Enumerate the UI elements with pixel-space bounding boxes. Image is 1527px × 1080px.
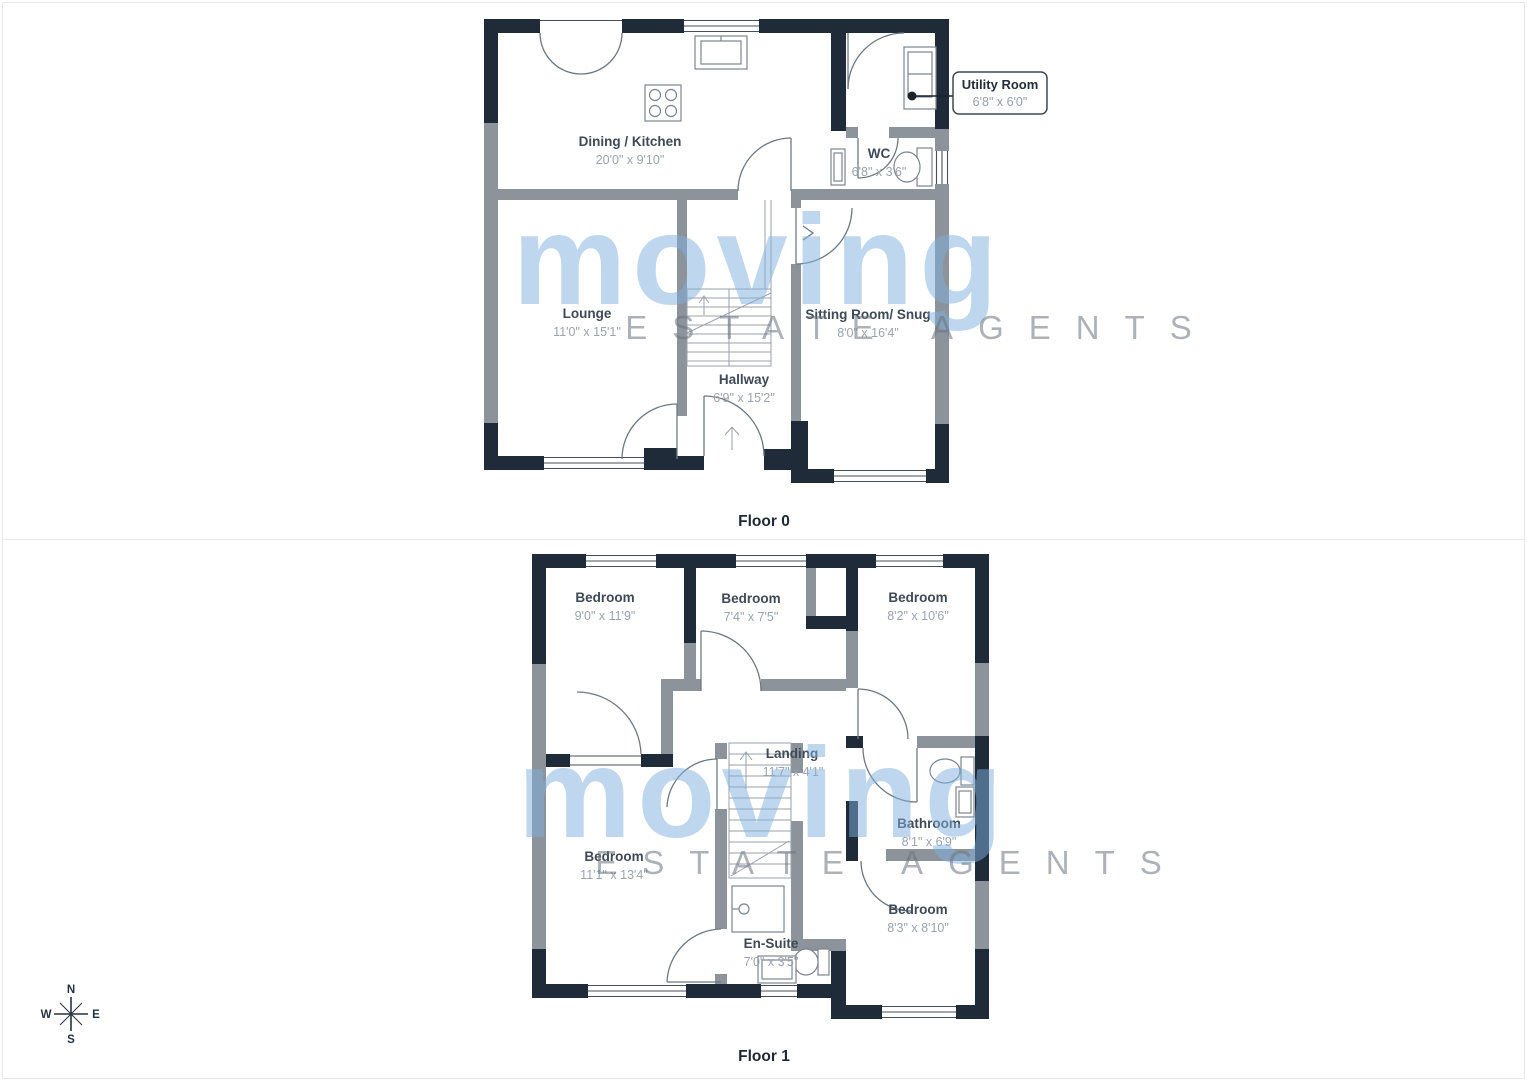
ensuite-toilet-icon bbox=[818, 949, 829, 975]
callout-room-name: Utility Room bbox=[962, 77, 1039, 92]
room-label-hallway: Hallway bbox=[719, 372, 770, 387]
room-label-wc: WC bbox=[868, 146, 891, 161]
room-label-ensuite: En-Suite bbox=[744, 936, 799, 951]
hob-icon bbox=[645, 85, 681, 121]
floor1-watermark: moving ESTATE AGENTS bbox=[517, 722, 1186, 881]
watermark-tagline: ESTATE AGENTS bbox=[625, 309, 1217, 346]
wc-sink-icon bbox=[831, 149, 845, 185]
shower-icon bbox=[732, 886, 784, 932]
room-label-bedroom1: Bedroom bbox=[575, 590, 634, 605]
room-dims-hallway: 6'9" x 15'2" bbox=[713, 391, 775, 405]
compass-south: S bbox=[67, 1034, 75, 1046]
room-label-bedroom5: Bedroom bbox=[888, 902, 947, 917]
floor1-plan: Bedroom 9'0" x 11'9" Bedroom 7'4" x 7'5"… bbox=[3, 540, 1524, 1078]
room-dims-ensuite: 7'0" x 3'5" bbox=[744, 955, 799, 969]
utility-appliance-icon bbox=[904, 47, 936, 109]
floor0-plan: Dining / Kitchen 20'0" x 9'10" WC 6'8" x… bbox=[3, 3, 1524, 539]
compass-east: E bbox=[92, 1009, 100, 1021]
room-dims-dining-kitchen: 20'0" x 9'10" bbox=[596, 153, 665, 167]
room-label-bedroom3: Bedroom bbox=[888, 590, 947, 605]
room-dims-bedroom1: 9'0" x 11'9" bbox=[575, 609, 636, 623]
floor1-label: Floor 1 bbox=[738, 1048, 790, 1065]
room-label-bedroom2: Bedroom bbox=[721, 591, 780, 606]
room-label-dining-kitchen: Dining / Kitchen bbox=[579, 134, 682, 149]
entrance-arrow-icon bbox=[725, 427, 739, 450]
compass-rose-icon: N S W E bbox=[41, 984, 101, 1046]
compass-north: N bbox=[67, 984, 75, 996]
floorplan-page: Dining / Kitchen 20'0" x 9'10" WC 6'8" x… bbox=[0, 0, 1527, 1080]
callout-room-dims: 6'8" x 6'0" bbox=[973, 95, 1028, 109]
room-dims-bedroom3: 8'2" x 10'6" bbox=[887, 609, 949, 623]
floor0-panel: Dining / Kitchen 20'0" x 9'10" WC 6'8" x… bbox=[2, 2, 1525, 540]
room-dims-wc: 6'8" x 3'6" bbox=[852, 165, 907, 179]
room-dims-bedroom2: 7'4" x 7'5" bbox=[724, 610, 779, 624]
floor0-watermark: moving ESTATE AGENTS bbox=[512, 189, 1216, 346]
floor0-label: Floor 0 bbox=[738, 513, 790, 530]
compass-west: W bbox=[41, 1009, 52, 1021]
floor1-panel: Bedroom 9'0" x 11'9" Bedroom 7'4" x 7'5"… bbox=[2, 539, 1525, 1079]
watermark-tagline: ESTATE AGENTS bbox=[595, 844, 1187, 881]
room-dims-bedroom5: 8'3" x 8'10" bbox=[887, 921, 949, 935]
